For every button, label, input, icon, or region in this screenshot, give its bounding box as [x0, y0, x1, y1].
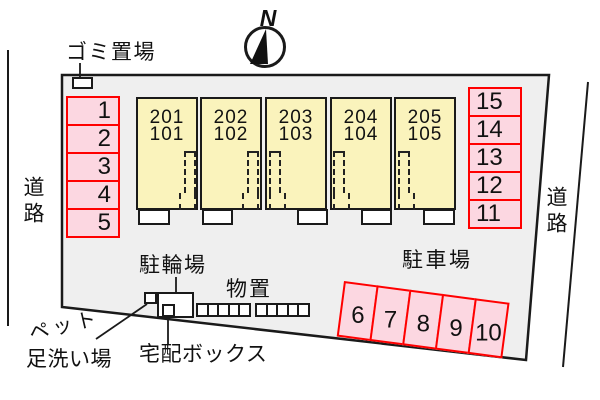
site-plan: N ゴミ置場 道路 道路 1 2 3 4 5 15 14 13 12 11 20…: [0, 0, 600, 400]
parking-spot-10: 10: [468, 298, 510, 358]
parking-spot-11: 11: [468, 199, 522, 229]
parking-spot-12: 12: [468, 171, 522, 201]
storage-units-right: [255, 303, 310, 317]
garbage-area-box: [72, 77, 93, 89]
parking-spot-2: 2: [66, 124, 120, 154]
unit3-entry-dashes: [269, 193, 286, 210]
spot-number: 9: [449, 305, 462, 343]
parking-spot-3: 3: [66, 152, 120, 182]
storage-cell: [297, 303, 310, 317]
unit-lower-number: 103: [267, 127, 325, 144]
spot-number: 8: [416, 301, 429, 339]
parking-spot-13: 13: [468, 143, 522, 173]
unit3-entry-dashes: [269, 151, 281, 193]
delivery-box: [162, 304, 175, 317]
spot-number: 7: [384, 296, 397, 334]
parking-column-left: 1 2 3 4 5: [66, 96, 120, 238]
north-label: N: [256, 5, 280, 32]
parking-column-right: 15 14 13 12 11: [468, 87, 522, 229]
unit5-porch: [423, 209, 455, 225]
unit1-entry-dashes: [179, 193, 196, 210]
pet-foot-wash-box: [144, 292, 157, 304]
pet-foot-wash-label-line2: 足洗い場: [26, 349, 112, 371]
garbage-area-label: ゴミ置場: [66, 42, 156, 64]
unit4-entry-dashes: [333, 151, 345, 193]
unit2-entry-dashes: [242, 193, 259, 210]
unit5-entry-dashes: [398, 193, 415, 210]
road-label-left: 道路: [21, 176, 43, 228]
parking-spot-15: 15: [468, 87, 522, 117]
parking-spot-5: 5: [66, 208, 120, 238]
unit1-entry-dashes: [184, 151, 196, 193]
parking-spot-14: 14: [468, 115, 522, 145]
unit-lower-number: 102: [202, 127, 260, 144]
storage-cell: [238, 303, 251, 317]
unit-lower-number: 105: [396, 127, 454, 144]
unit3-porch: [297, 209, 328, 225]
spot-number: 6: [351, 292, 364, 330]
unit4-porch: [361, 209, 392, 225]
unit5-entry-dashes: [398, 151, 410, 193]
unit-lower-number: 104: [332, 127, 390, 144]
storage-label: 物置: [226, 279, 272, 301]
parking-spot-1: 1: [66, 96, 120, 126]
bicycle-parking-label: 駐輪場: [139, 255, 207, 277]
spot-number: 10: [475, 309, 502, 347]
delivery-box-label: 宅配ボックス: [139, 344, 267, 366]
road-label-right: 道路: [544, 186, 566, 238]
parking-spot-4: 4: [66, 180, 120, 210]
parking-lot-label: 駐車場: [402, 250, 473, 272]
storage-units-left: [196, 303, 251, 317]
unit2-entry-dashes: [247, 151, 259, 193]
unit4-entry-dashes: [333, 193, 350, 210]
unit-lower-number: 101: [138, 127, 196, 144]
unit1-porch: [138, 209, 170, 225]
unit2-porch: [202, 209, 233, 225]
